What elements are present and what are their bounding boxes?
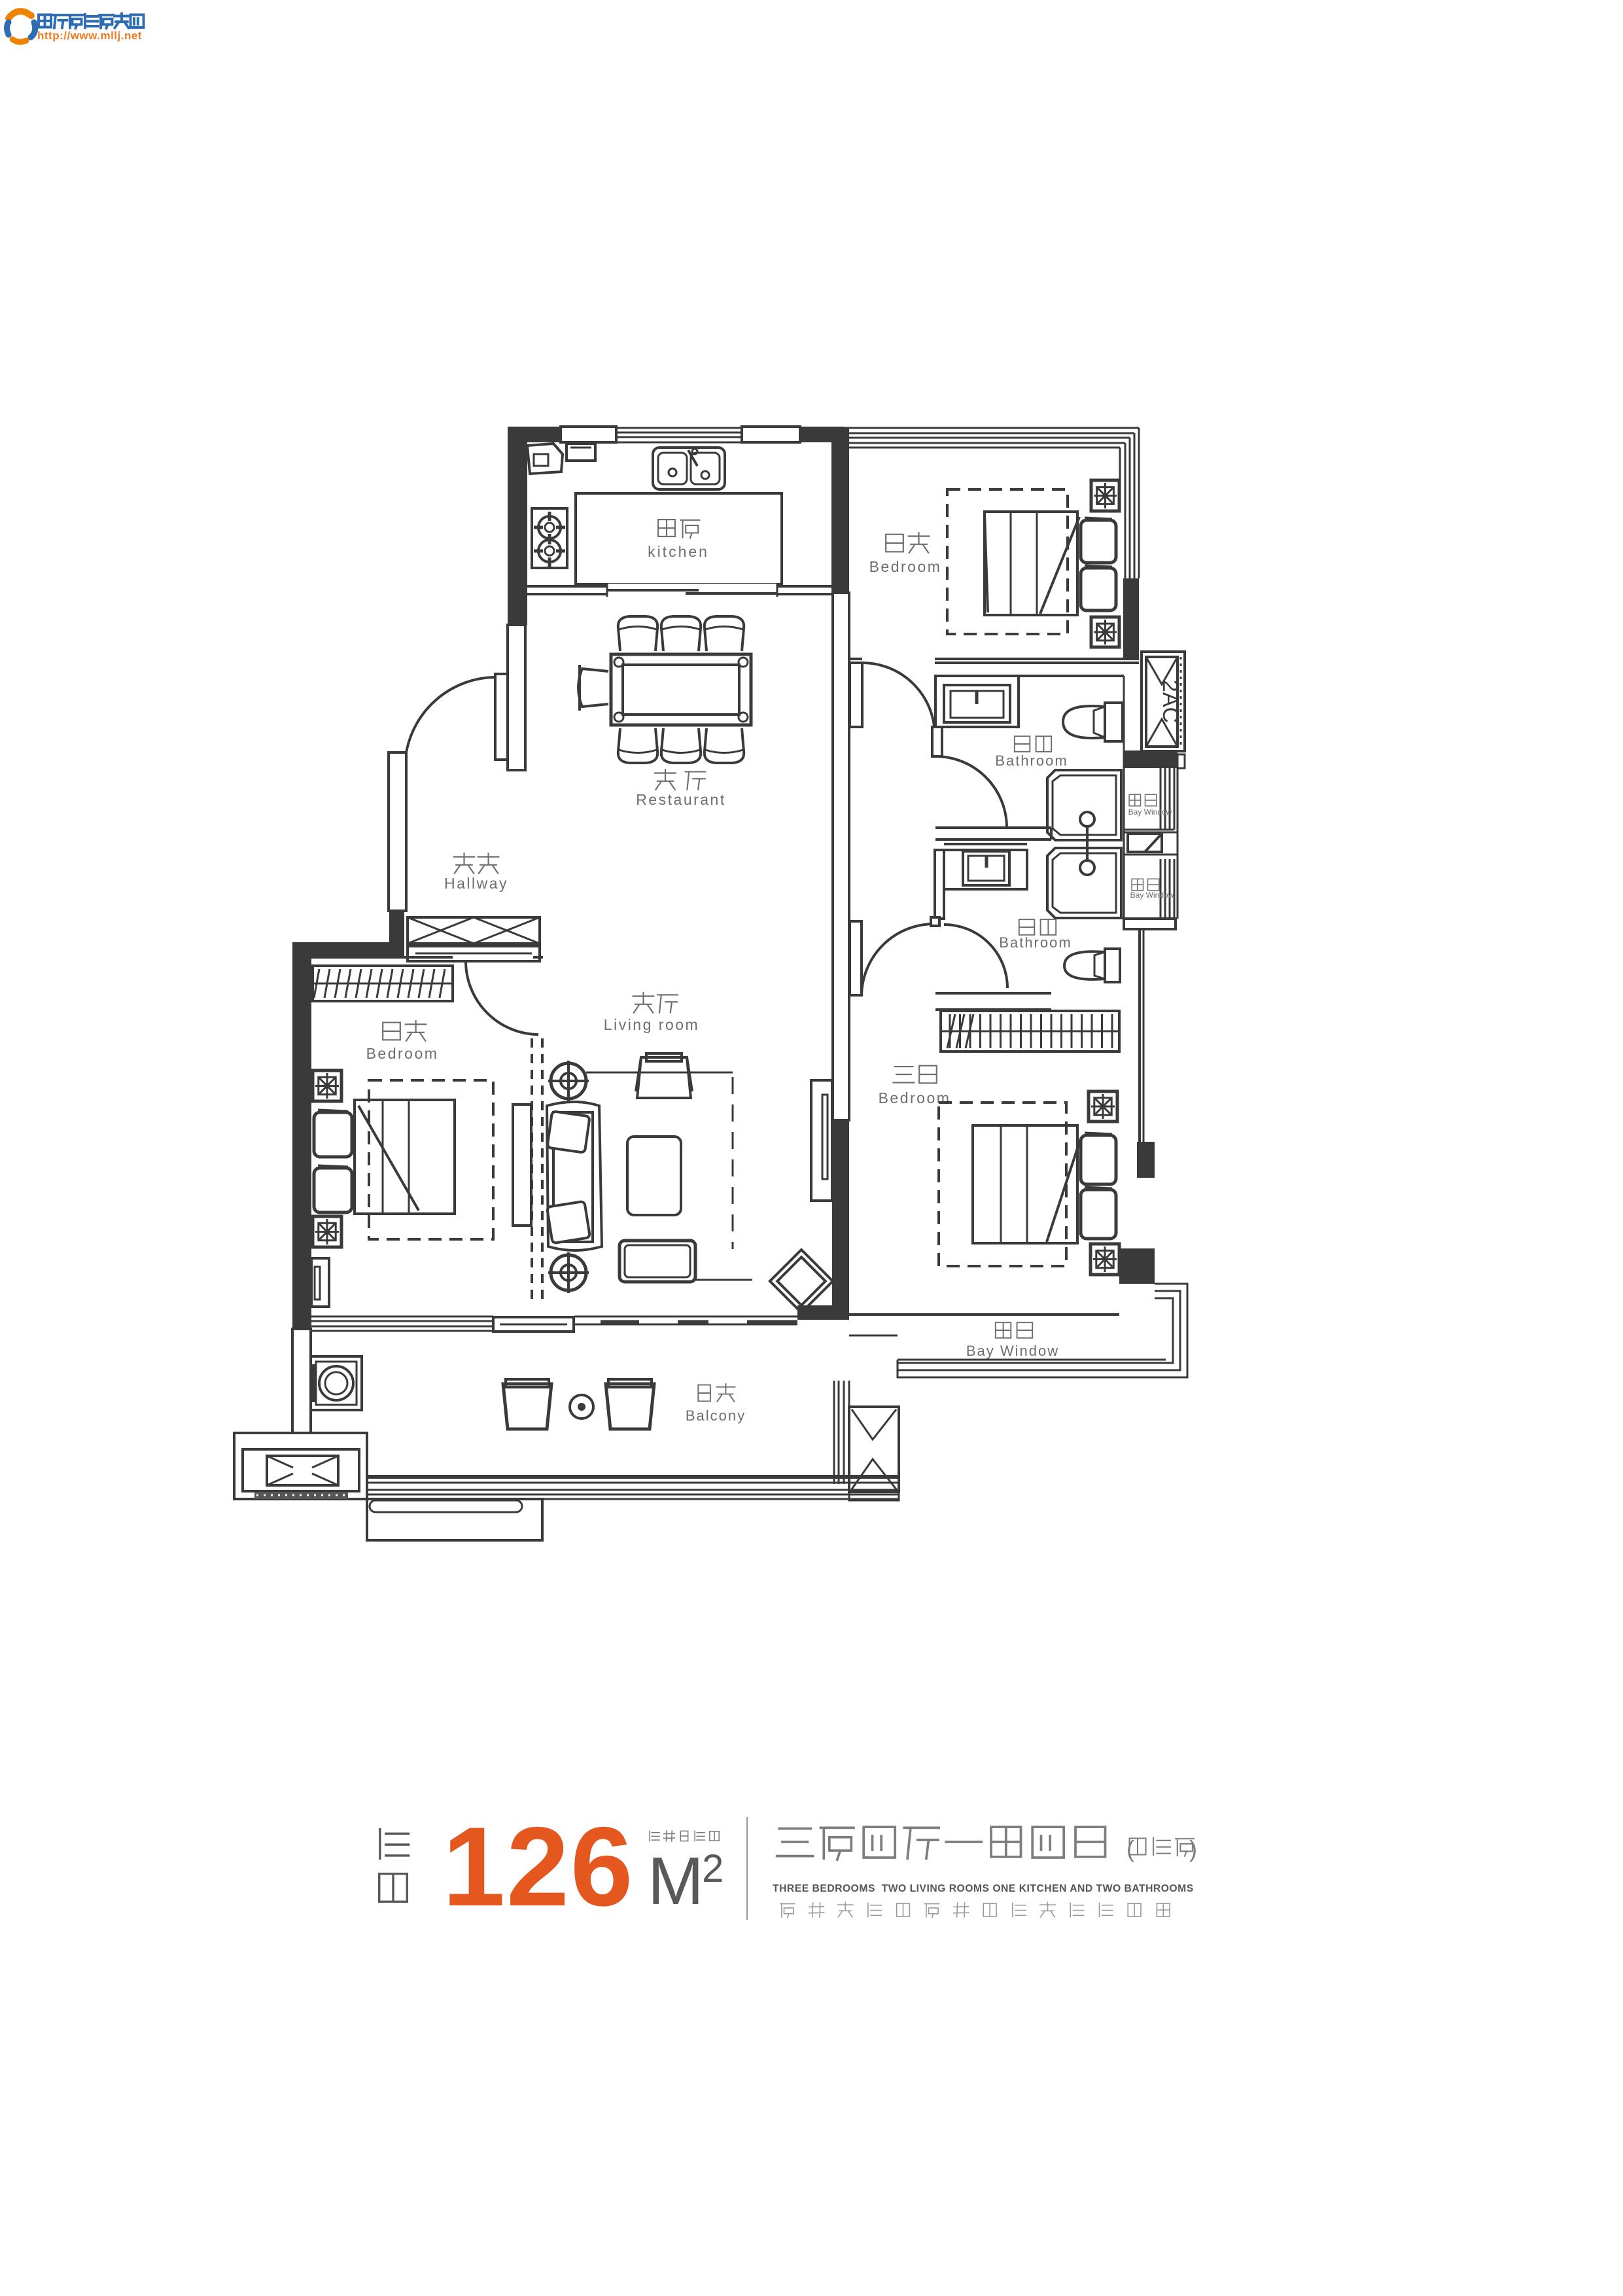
svg-text:Bathroom: Bathroom (995, 752, 1068, 769)
svg-text:126: 126 (443, 1804, 635, 1930)
svg-text:): ) (1189, 1835, 1197, 1862)
svg-text:Bay Window: Bay Window (966, 1343, 1059, 1359)
svg-text:Bathroom: Bathroom (999, 934, 1072, 951)
svg-text:2AC: 2AC (1158, 680, 1183, 723)
svg-text:THREE BEDROOMS TWO LIVING ROO: THREE BEDROOMS TWO LIVING ROOMS ONE KITC… (773, 1883, 1194, 1894)
svg-text:http://www.mllj.net: http://www.mllj.net (37, 29, 142, 42)
svg-text:Living room: Living room (604, 1016, 699, 1033)
svg-text:Bedroom: Bedroom (869, 558, 942, 575)
svg-text:(: ( (1126, 1835, 1134, 1862)
svg-text:Bedroom: Bedroom (366, 1045, 439, 1062)
svg-text:Bedroom: Bedroom (879, 1089, 951, 1106)
svg-text:Bay Window: Bay Window (1128, 807, 1172, 817)
svg-text:Balcony: Balcony (686, 1407, 746, 1424)
svg-text:M: M (648, 1843, 704, 1918)
svg-text:2: 2 (702, 1846, 724, 1890)
svg-text:kitchen: kitchen (648, 543, 709, 560)
svg-text:Hallway: Hallway (444, 875, 508, 892)
svg-text:Restaurant: Restaurant (636, 791, 726, 808)
svg-text:Bay Window: Bay Window (1130, 891, 1174, 900)
